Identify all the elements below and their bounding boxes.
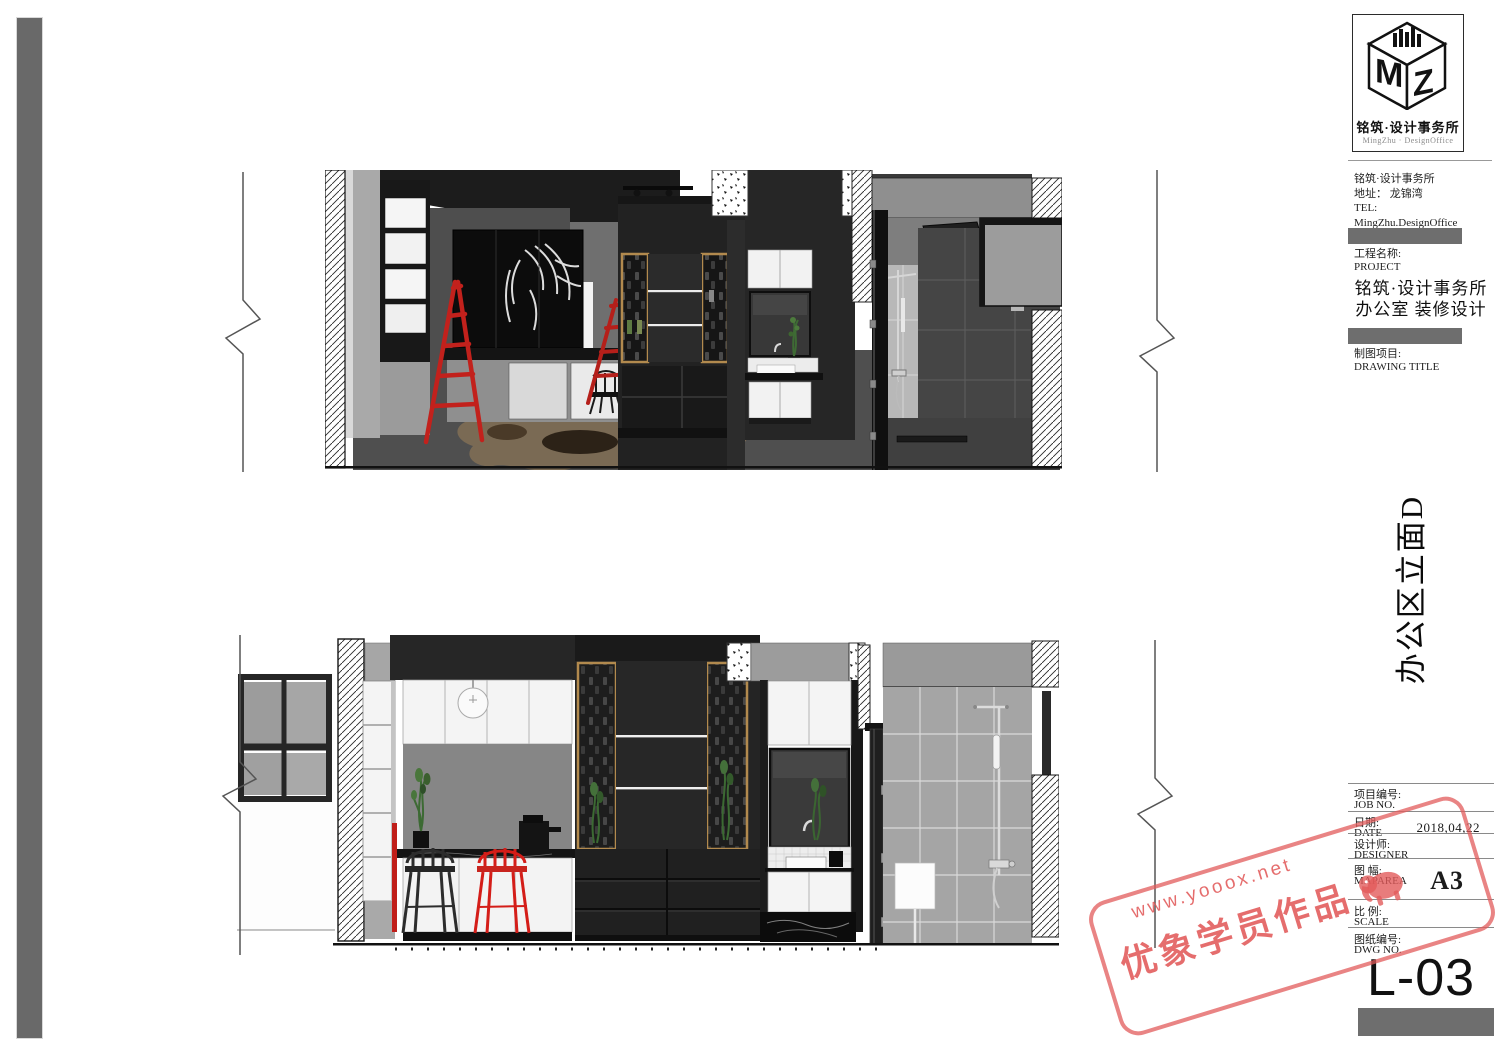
project-label-en: PROJECT	[1354, 261, 1400, 274]
project-label-cn: 工程名称:	[1354, 248, 1401, 261]
ground-line	[333, 943, 1059, 946]
mz-cube-logo-icon: M Z	[1353, 15, 1461, 110]
beam	[751, 643, 849, 681]
shelf-unit	[380, 180, 430, 435]
wall-section-hatch	[858, 645, 870, 729]
terrazzo-cut	[727, 643, 751, 681]
company-info: 铭筑·设计事务所 地址： 龙锦湾 TEL: MingZhu.DesignOffi…	[1354, 172, 1457, 230]
svg-text:M: M	[1375, 52, 1403, 96]
section-bar	[1348, 328, 1462, 344]
wine-rack-right	[707, 663, 747, 849]
divider	[1348, 160, 1492, 161]
beam	[870, 178, 1032, 218]
wall-section-hatch	[852, 170, 872, 302]
wine-rack-left	[578, 663, 616, 849]
sink	[786, 857, 826, 869]
wall-section-hatch	[325, 170, 345, 468]
terrazzo-cut	[712, 170, 748, 216]
wine-column-left	[622, 254, 648, 362]
logo-name-cn: 铭筑·设计事务所	[1353, 117, 1463, 136]
company-name: 铭筑·设计事务所	[1354, 172, 1457, 187]
left-return-wall	[353, 170, 380, 438]
svg-text:Z: Z	[1413, 62, 1434, 104]
wall-section-hatch	[1032, 641, 1059, 687]
wine-cabinet	[618, 186, 745, 470]
break-line-left	[218, 635, 260, 955]
bottom-bar	[1358, 1008, 1494, 1036]
bar-area	[392, 680, 575, 941]
elephant-icon	[1351, 855, 1414, 912]
sink	[757, 365, 795, 374]
company-address: 地址： 龙锦湾	[1354, 187, 1457, 202]
floor-drain	[897, 436, 967, 442]
vanity-area	[760, 680, 863, 942]
shelf-stack	[363, 643, 395, 939]
shower-room	[883, 643, 1051, 943]
top-elevation-render	[325, 170, 1062, 470]
wall-section-hatch	[1032, 310, 1062, 468]
drawing-title-vertical: 办公区立面D	[1386, 480, 1432, 698]
project-name: 铭筑·设计事务所 办公室 装修设计	[1348, 278, 1494, 320]
break-line-right	[1138, 170, 1180, 472]
company-logo: M Z 铭筑·设计事务所 MingZhu · DesignOffice	[1352, 14, 1464, 152]
ground-line	[325, 466, 1062, 469]
window-opening	[980, 218, 1062, 306]
track-light	[623, 186, 693, 190]
glass-partition	[870, 210, 888, 470]
marble-base	[760, 912, 856, 942]
wall-section-hatch	[338, 639, 364, 941]
vanity-area	[745, 170, 855, 440]
drawing-label-cn: 制图项目:	[1354, 348, 1401, 361]
left-margin-bar	[16, 17, 43, 1039]
break-line-left	[222, 172, 264, 472]
white-panel	[895, 863, 935, 909]
logo-name-en: MingZhu · DesignOffice	[1353, 136, 1463, 145]
company-tel: TEL:	[1354, 201, 1457, 216]
red-ladder-edge	[392, 823, 397, 932]
zebra-artwork	[453, 230, 583, 348]
drawing-label-en: DRAWING TITLE	[1354, 361, 1439, 374]
drawing-sheet: M Z 铭筑·设计事务所 MingZhu · DesignOffice 铭筑·设…	[0, 0, 1500, 1061]
wall-section-hatch	[1032, 178, 1062, 218]
bottom-elevation-render	[237, 635, 1059, 955]
wall-section-hatch	[1032, 775, 1059, 937]
section-bar	[1348, 228, 1462, 244]
wine-column-right	[702, 254, 728, 362]
